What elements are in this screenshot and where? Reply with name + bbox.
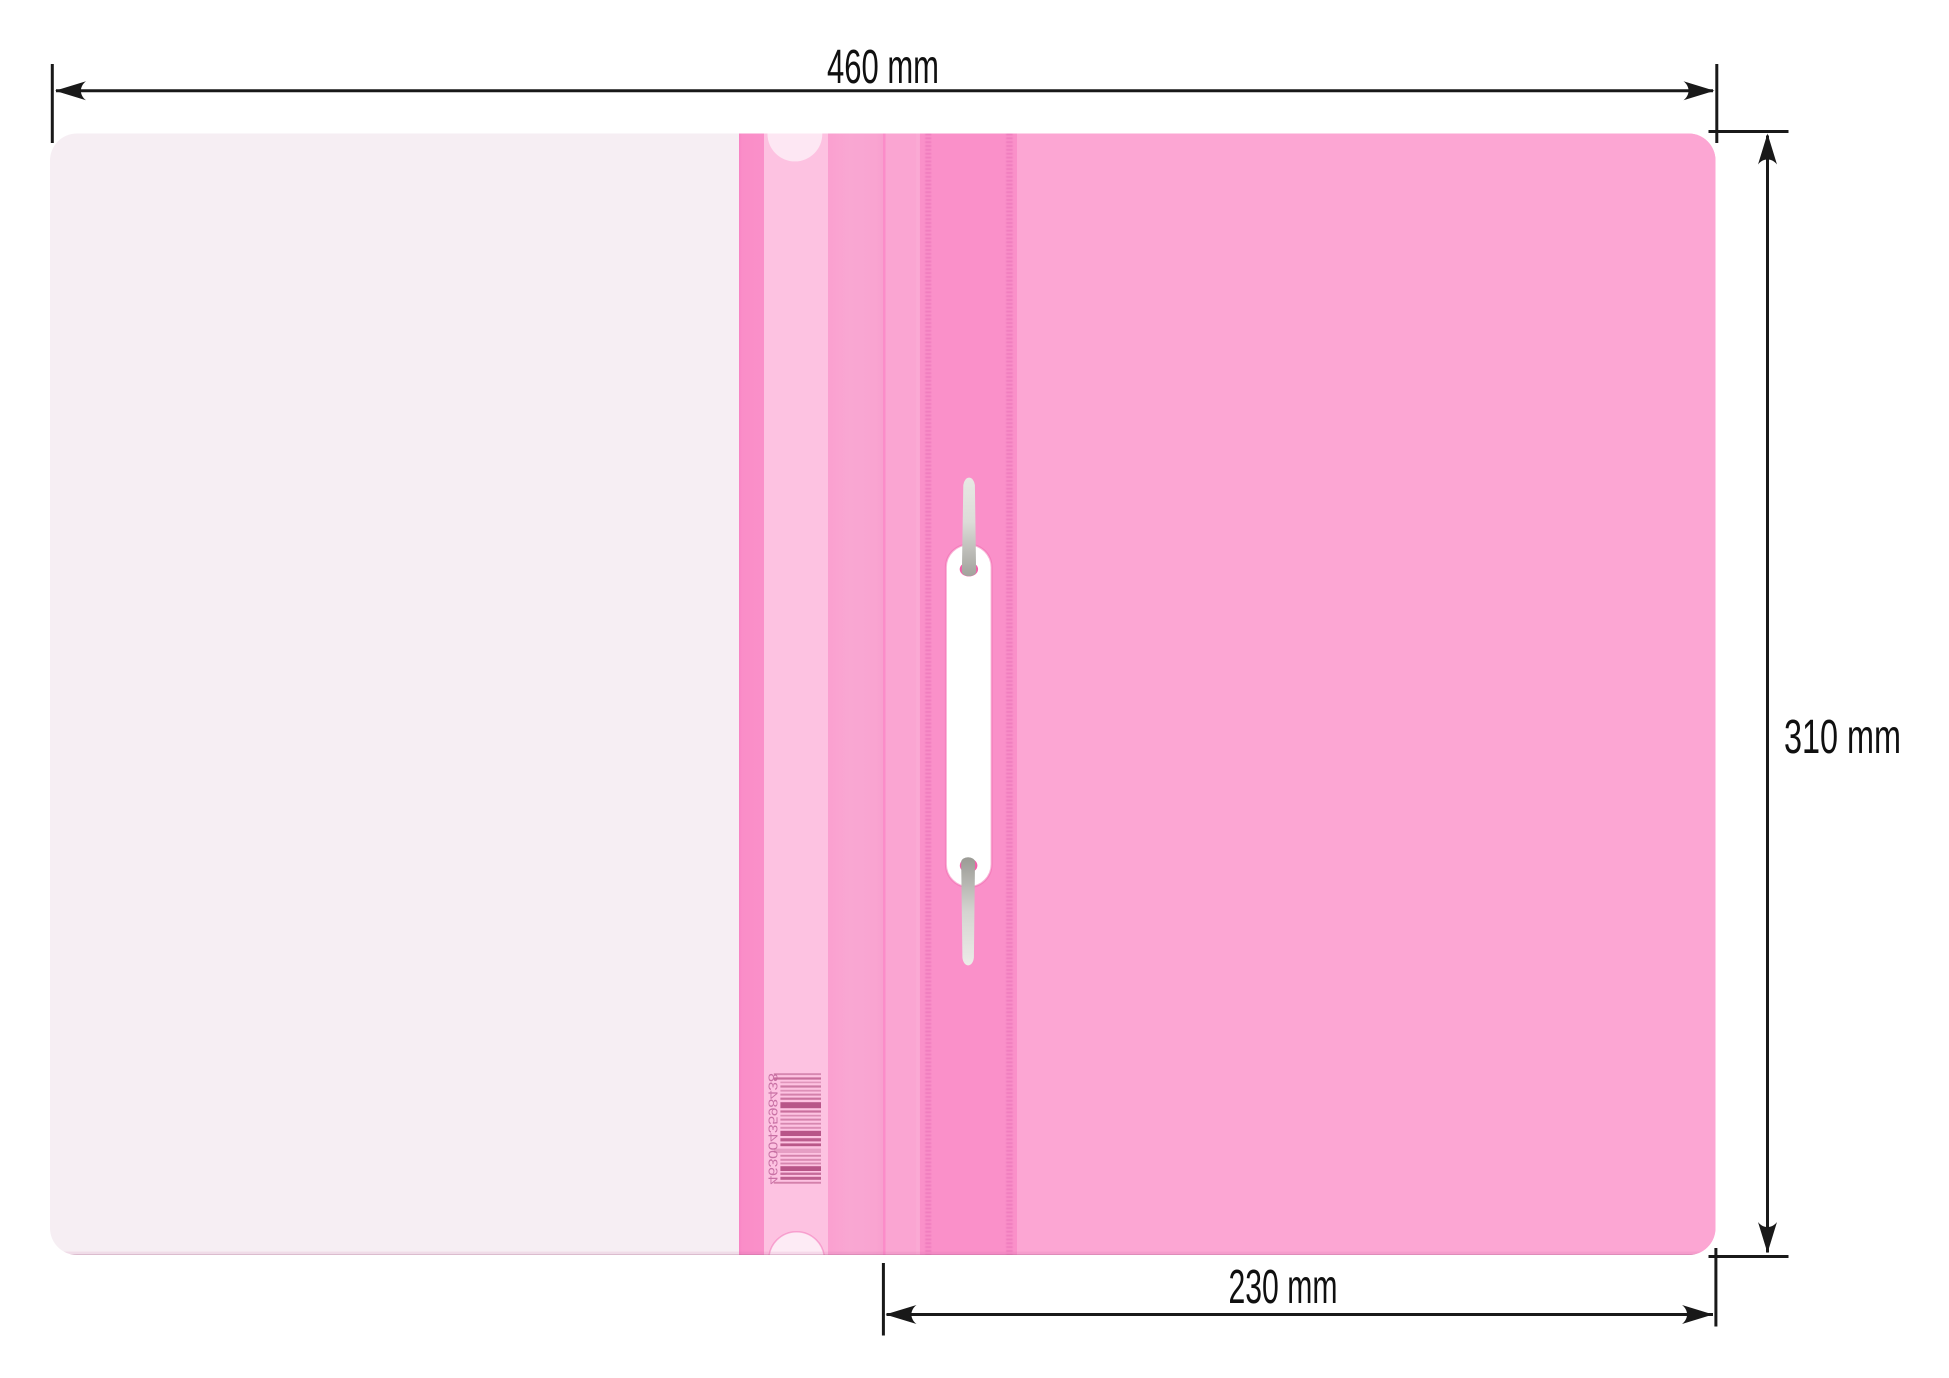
svg-text:4630043598438: 4630043598438: [766, 1073, 780, 1184]
svg-text:310 mm: 310 mm: [1784, 710, 1901, 764]
svg-text:460 mm: 460 mm: [827, 40, 939, 94]
svg-text:230 mm: 230 mm: [1229, 1260, 1338, 1314]
